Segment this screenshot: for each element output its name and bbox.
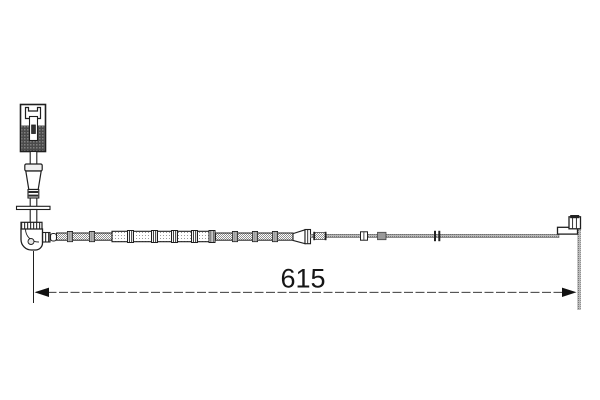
- drawing-canvas: 615: [0, 0, 600, 400]
- bracket-top-cap: [570, 215, 579, 218]
- lead-double-tick: [438, 231, 440, 241]
- connector-terminal: [32, 125, 36, 134]
- cable-clip: [192, 231, 198, 243]
- wire-sleeve: [314, 233, 326, 240]
- cable-stem-lower: [30, 210, 37, 223]
- cable-clip: [232, 231, 237, 241]
- cable-clip: [152, 231, 158, 243]
- cable-clip: [67, 231, 72, 241]
- cable-grommet: [26, 171, 41, 190]
- elbow-outlet-nipple: [43, 233, 51, 243]
- connector-assembly: [17, 105, 57, 251]
- cable-clip: [128, 231, 134, 243]
- elbow-knurled-collar: [21, 222, 42, 229]
- cable-stem-middle: [30, 198, 37, 207]
- sensor-end-bracket: [569, 217, 581, 229]
- lead-ferrule: [378, 232, 387, 239]
- sleeve-tick: [313, 232, 315, 240]
- boot-band: [29, 191, 39, 193]
- cable-stem-upper: [30, 152, 37, 166]
- cable-clip: [172, 231, 178, 243]
- sleeve-tick: [325, 232, 327, 240]
- sensor-end: [558, 215, 581, 310]
- arrowhead-left: [35, 288, 50, 297]
- sleeved-cable-a: [57, 233, 113, 240]
- dimension: 615: [34, 251, 577, 303]
- cable-clip: [209, 231, 215, 243]
- cable-clip: [252, 231, 257, 241]
- cable-clip: [272, 231, 277, 241]
- technical-drawing: 615: [0, 0, 600, 400]
- elbow-hub: [28, 239, 34, 245]
- lead-double-tick: [434, 231, 436, 241]
- elbow-link: [51, 234, 57, 242]
- cable-run: [57, 230, 560, 244]
- dimension-label: 615: [280, 264, 325, 294]
- cable-clip: [89, 231, 94, 241]
- strain-relief-boot: [28, 190, 39, 199]
- arrowhead-right: [562, 288, 577, 297]
- boot-band: [29, 195, 39, 197]
- transition-cone: [293, 230, 305, 244]
- grommet-collar: [25, 164, 42, 171]
